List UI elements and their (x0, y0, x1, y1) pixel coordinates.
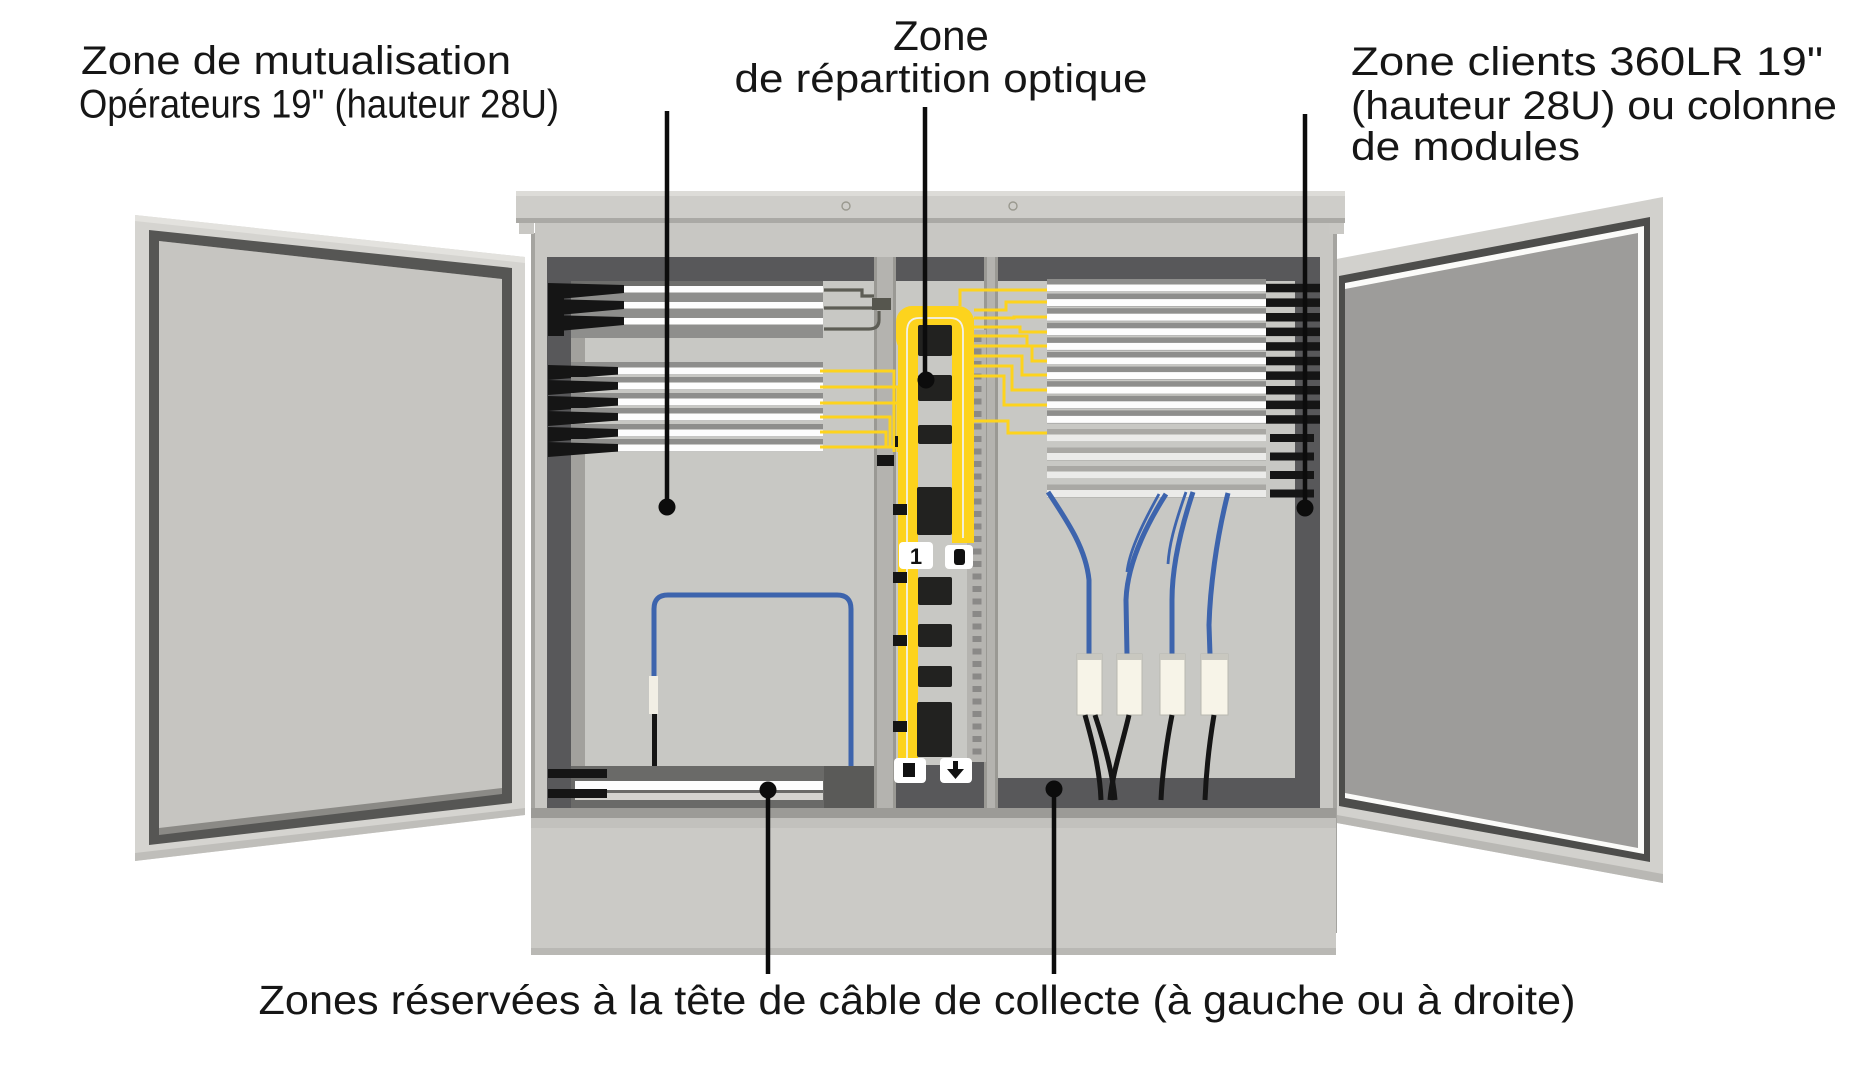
svg-text:1: 1 (910, 544, 922, 569)
svg-text:Zone clients 360LR 19": Zone clients 360LR 19" (1351, 40, 1823, 84)
svg-text:Zone de mutualisation: Zone de mutualisation (81, 39, 511, 83)
svg-text:Zones réservées à la tête de c: Zones réservées à la tête de câble de co… (259, 977, 1576, 1023)
svg-text:(hauteur 28U) ou colonne: (hauteur 28U) ou colonne (1351, 84, 1837, 128)
svg-text:Zone: Zone (893, 12, 989, 59)
svg-text:Opérateurs 19" (hauteur 28U): Opérateurs 19" (hauteur 28U) (79, 83, 559, 127)
svg-text:de répartition optique: de répartition optique (735, 57, 1148, 101)
svg-text:de modules: de modules (1351, 125, 1580, 169)
